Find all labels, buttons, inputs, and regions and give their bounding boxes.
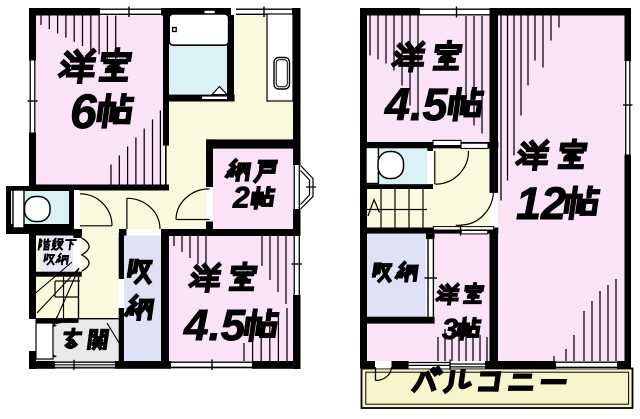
svg-text:6: 6 [70,86,97,139]
svg-text:12: 12 [516,178,566,229]
svg-text:3: 3 [442,314,458,346]
svg-text:4.5: 4.5 [183,301,246,350]
svg-text:4.5: 4.5 [384,79,449,130]
svg-text:2: 2 [232,182,250,215]
